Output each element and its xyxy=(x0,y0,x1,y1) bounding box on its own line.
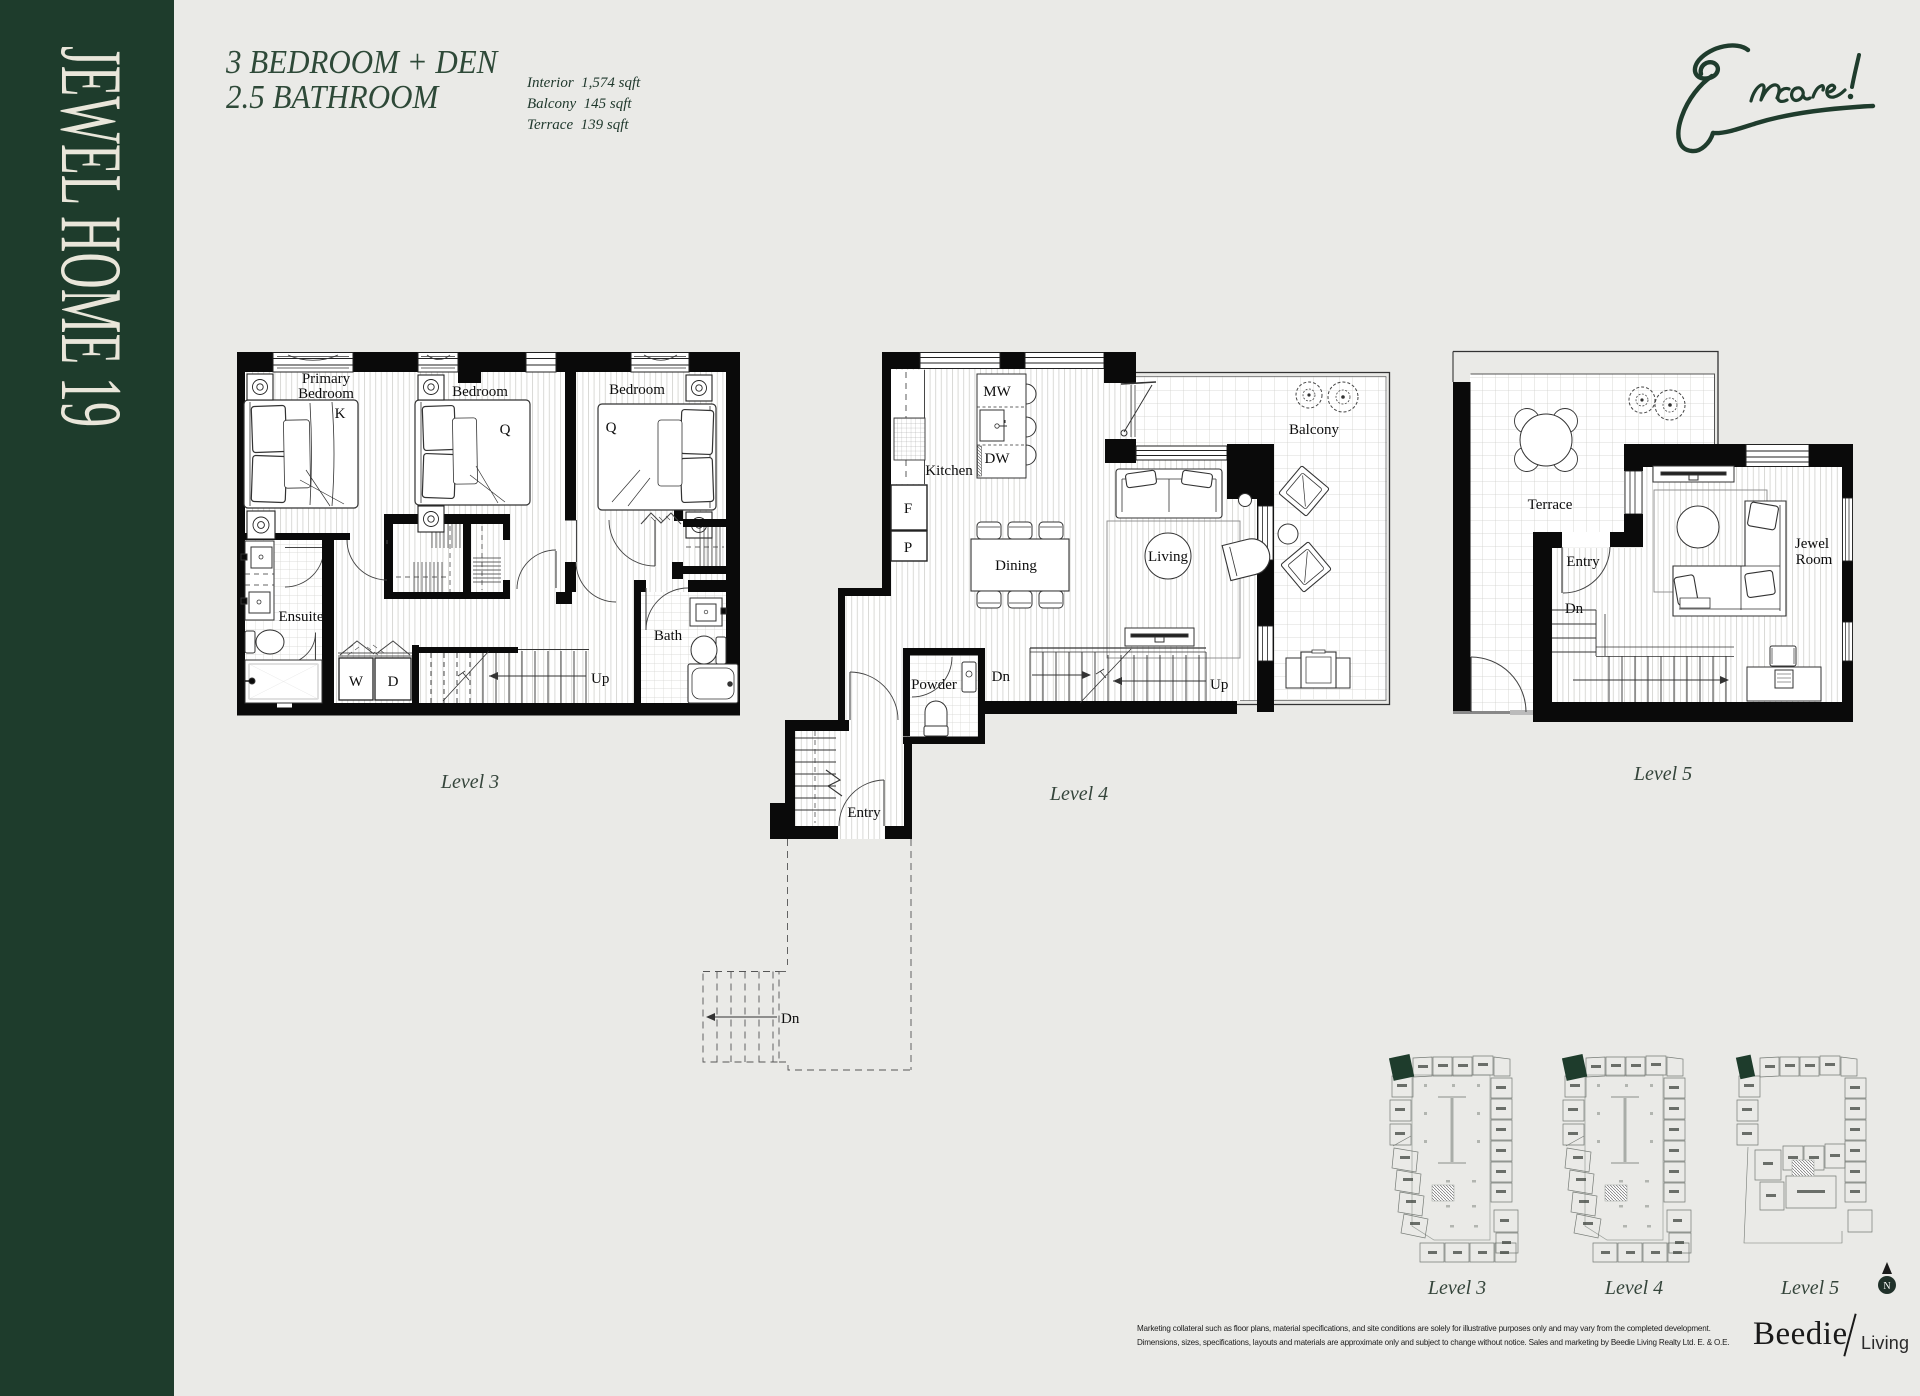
svg-text:Jewel: Jewel xyxy=(1795,536,1829,552)
svg-text:D: D xyxy=(388,674,399,690)
svg-text:MW: MW xyxy=(983,384,1011,400)
svg-text:Up: Up xyxy=(1210,677,1228,693)
svg-text:Kitchen: Kitchen xyxy=(925,463,973,479)
svg-text:Bedroom: Bedroom xyxy=(452,384,508,400)
svg-text:Bath: Bath xyxy=(654,628,683,644)
svg-text:Q: Q xyxy=(606,420,617,436)
svg-text:Room: Room xyxy=(1796,552,1833,568)
svg-text:Level 3: Level 3 xyxy=(1427,1277,1486,1299)
svg-text:Level 4: Level 4 xyxy=(1604,1277,1663,1299)
svg-text:Level 5: Level 5 xyxy=(1633,763,1692,785)
svg-text:N: N xyxy=(1883,1281,1890,1292)
svg-text:F: F xyxy=(904,501,912,517)
svg-text:Balcony: Balcony xyxy=(1289,422,1339,438)
svg-text:Dining: Dining xyxy=(995,558,1037,574)
svg-text:Bedroom: Bedroom xyxy=(609,382,665,398)
svg-text:Level 5: Level 5 xyxy=(1780,1277,1839,1299)
svg-text:Level 4: Level 4 xyxy=(1049,783,1108,805)
svg-text:W: W xyxy=(349,674,364,690)
svg-text:Terrace: Terrace xyxy=(1528,497,1573,513)
svg-text:Ensuite: Ensuite xyxy=(279,609,324,625)
svg-text:Dn: Dn xyxy=(992,669,1011,685)
svg-text:Q: Q xyxy=(500,422,511,438)
svg-text:P: P xyxy=(904,540,912,556)
svg-text:Entry: Entry xyxy=(1566,554,1600,570)
svg-text:Living: Living xyxy=(1148,549,1188,565)
svg-text:Entry: Entry xyxy=(847,805,881,821)
svg-text:Bedroom: Bedroom xyxy=(298,386,354,402)
svg-text:Level 3: Level 3 xyxy=(440,771,499,793)
svg-text:Dn: Dn xyxy=(1565,601,1584,617)
svg-text:DW: DW xyxy=(985,451,1011,467)
svg-text:K: K xyxy=(335,406,346,422)
svg-text:Up: Up xyxy=(591,671,609,687)
svg-text:Primary: Primary xyxy=(302,371,351,387)
svg-text:Dn: Dn xyxy=(781,1011,800,1027)
